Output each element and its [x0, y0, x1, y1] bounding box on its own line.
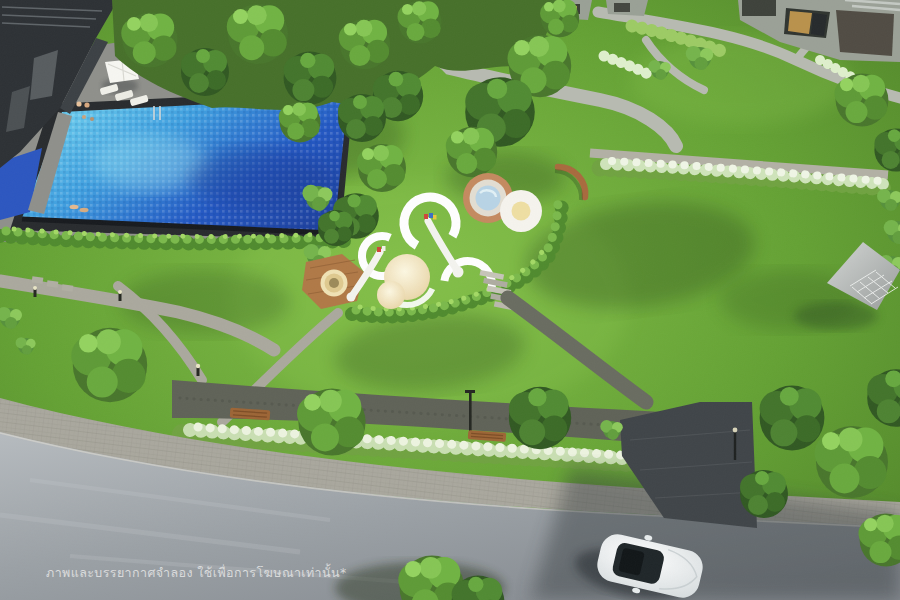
film-grain	[0, 0, 900, 600]
scene-canvas: ภาพและบรรยากาศจำลอง ใช้เพื่อการโฆษณาเท่า…	[0, 0, 900, 600]
watermark-text: ภาพและบรรยากาศจำลอง ใช้เพื่อการโฆษณาเท่า…	[46, 563, 347, 580]
aerial-landscape-render: ภาพและบรรยากาศจำลอง ใช้เพื่อการโฆษณาเท่า…	[0, 0, 900, 600]
